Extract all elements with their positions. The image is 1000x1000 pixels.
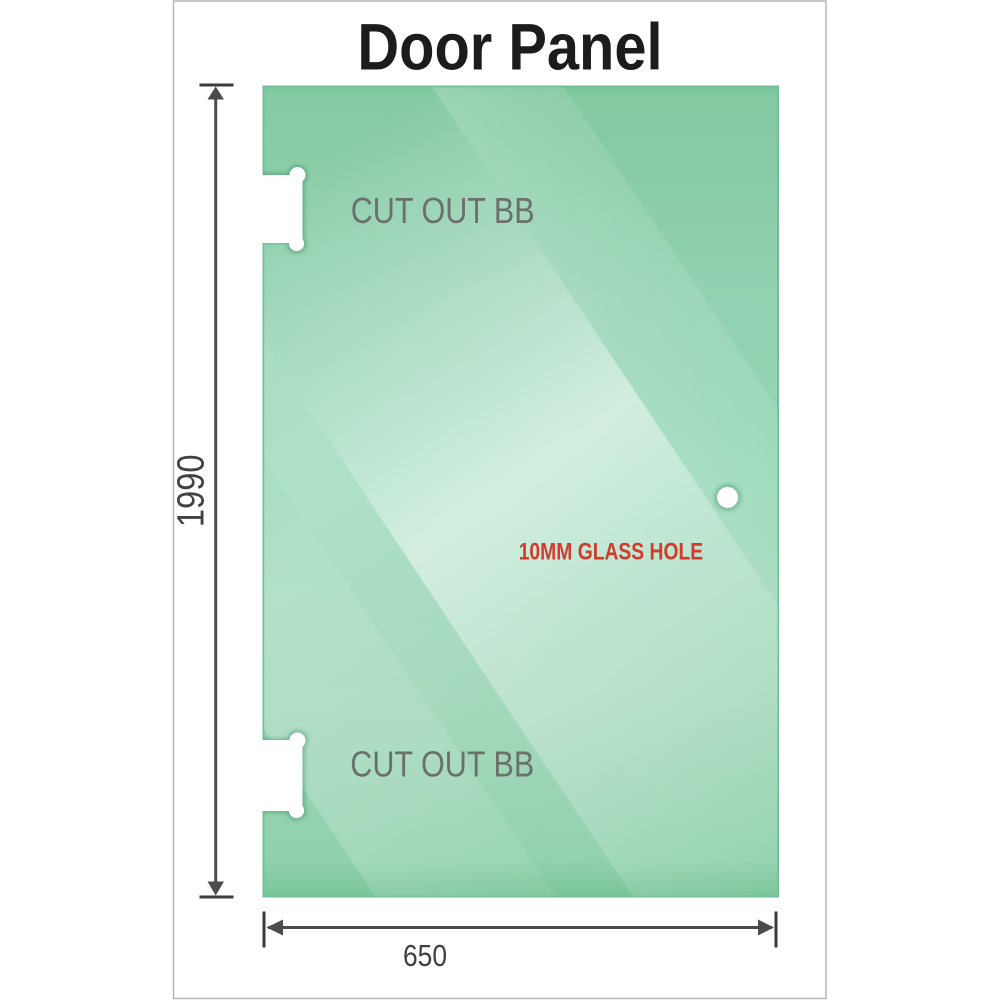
- svg-text:1990: 1990: [169, 454, 212, 527]
- svg-text:CUT OUT BB: CUT OUT BB: [351, 192, 535, 232]
- svg-text:650: 650: [403, 939, 447, 973]
- svg-text:CUT OUT BB: CUT OUT BB: [350, 745, 534, 785]
- svg-text:10MM GLASS HOLE: 10MM GLASS HOLE: [519, 538, 703, 566]
- svg-text:Door Panel: Door Panel: [357, 11, 662, 84]
